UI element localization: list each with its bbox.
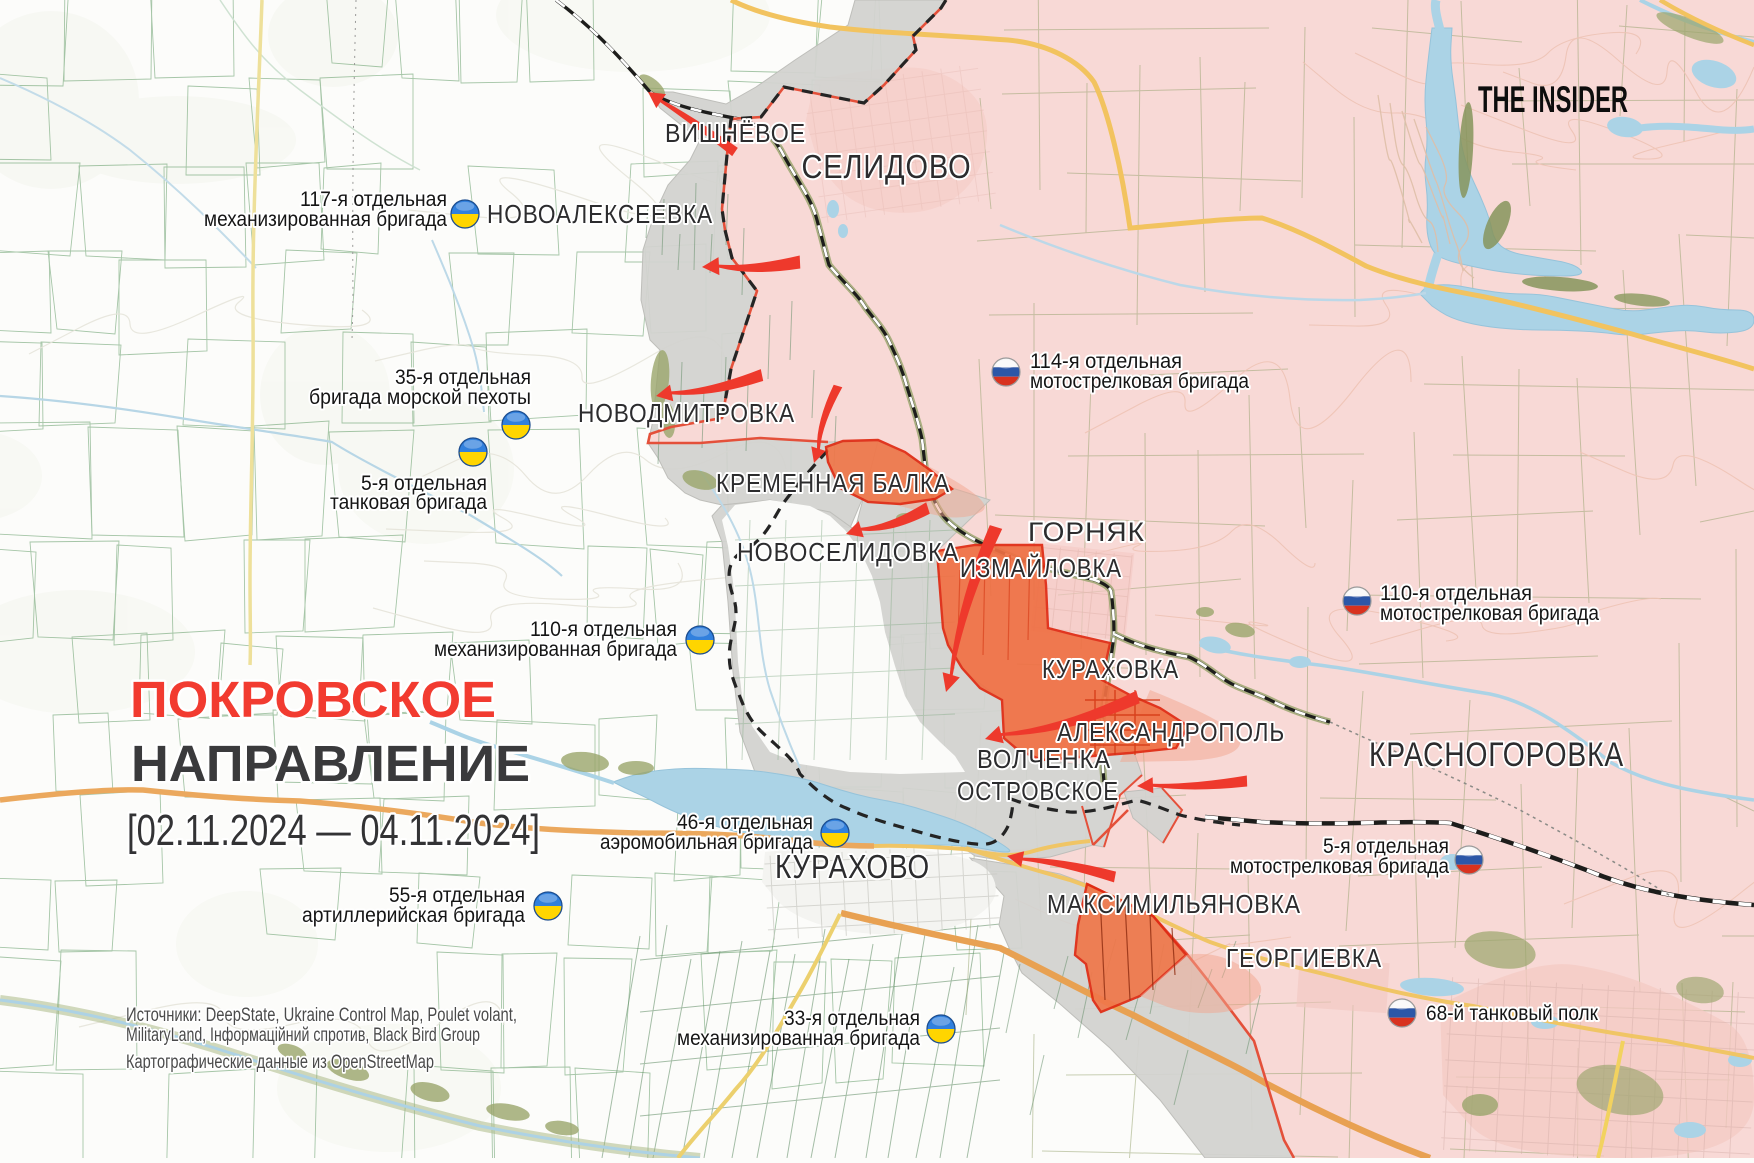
svg-text:КРАСНОГОРОВКА: КРАСНОГОРОВКА — [1369, 736, 1624, 774]
svg-text:Источники: DeepState, Ukraine: Источники: DeepState, Ukraine Control Ma… — [126, 1005, 517, 1026]
svg-text:Картографические данные из Ope: Картографические данные из OpenStreetMap — [126, 1052, 434, 1073]
svg-text:мотострелковая бригада: мотострелковая бригада — [1230, 855, 1449, 878]
svg-text:КРЕМЕННАЯ БАЛКА: КРЕМЕННАЯ БАЛКА — [716, 468, 950, 498]
svg-text:ПОКРОВСКОЕ: ПОКРОВСКОЕ — [130, 671, 496, 728]
svg-text:ВИШНЁВОЕ: ВИШНЁВОЕ — [665, 120, 806, 148]
svg-text:ГЕОРГИЕВКА: ГЕОРГИЕВКА — [1226, 943, 1382, 973]
svg-text:68-й танковый полк: 68-й танковый полк — [1426, 1002, 1599, 1025]
svg-text:механизированная бригада: механизированная бригада — [434, 638, 677, 661]
svg-text:АЛЕКСАНДРОПОЛЬ: АЛЕКСАНДРОПОЛЬ — [1057, 717, 1285, 747]
svg-text:мотострелковая бригада: мотострелковая бригада — [1380, 602, 1599, 625]
svg-text:НАПРАВЛЕНИЕ: НАПРАВЛЕНИЕ — [131, 735, 530, 792]
svg-text:НОВОДМИТРОВКА: НОВОДМИТРОВКА — [578, 398, 795, 428]
svg-text:НОВОСЕЛИДОВКА: НОВОСЕЛИДОВКА — [737, 537, 959, 567]
svg-text:МАКСИМИЛЬЯНОВКА: МАКСИМИЛЬЯНОВКА — [1047, 889, 1301, 919]
svg-text:ГОРНЯК: ГОРНЯК — [1028, 517, 1145, 547]
svg-text:танковая бригада: танковая бригада — [330, 491, 487, 514]
svg-text:КУРАХОВКА: КУРАХОВКА — [1042, 654, 1179, 684]
svg-text:артиллерийская бригада: артиллерийская бригада — [302, 904, 525, 927]
svg-text:аэромобильная бригада: аэромобильная бригада — [600, 831, 813, 854]
svg-text:НОВОАЛЕКСЕЕВКА: НОВОАЛЕКСЕЕВКА — [487, 199, 713, 229]
svg-text:MilitaryLand, Інформаційний сп: MilitaryLand, Інформаційний спротив, Bla… — [126, 1025, 480, 1046]
svg-text:бригада морской пехоты: бригада морской пехоты — [309, 386, 531, 409]
svg-text:механизированная бригада: механизированная бригада — [204, 208, 447, 231]
svg-text:ОСТРОВСКОЕ: ОСТРОВСКОЕ — [957, 776, 1119, 806]
svg-text:THE INSIDER: THE INSIDER — [1478, 79, 1628, 120]
svg-text:ВОЛЧЕНКА: ВОЛЧЕНКА — [977, 744, 1111, 774]
svg-text:[02.11.2024 — 04.11.2024]: [02.11.2024 — 04.11.2024] — [127, 806, 540, 855]
svg-text:мотострелковая бригада: мотострелковая бригада — [1030, 370, 1249, 393]
svg-text:ИЗМАЙЛОВКА: ИЗМАЙЛОВКА — [960, 553, 1122, 583]
svg-text:механизированная бригада: механизированная бригада — [677, 1027, 920, 1050]
svg-text:СЕЛИДОВО: СЕЛИДОВО — [802, 148, 972, 185]
